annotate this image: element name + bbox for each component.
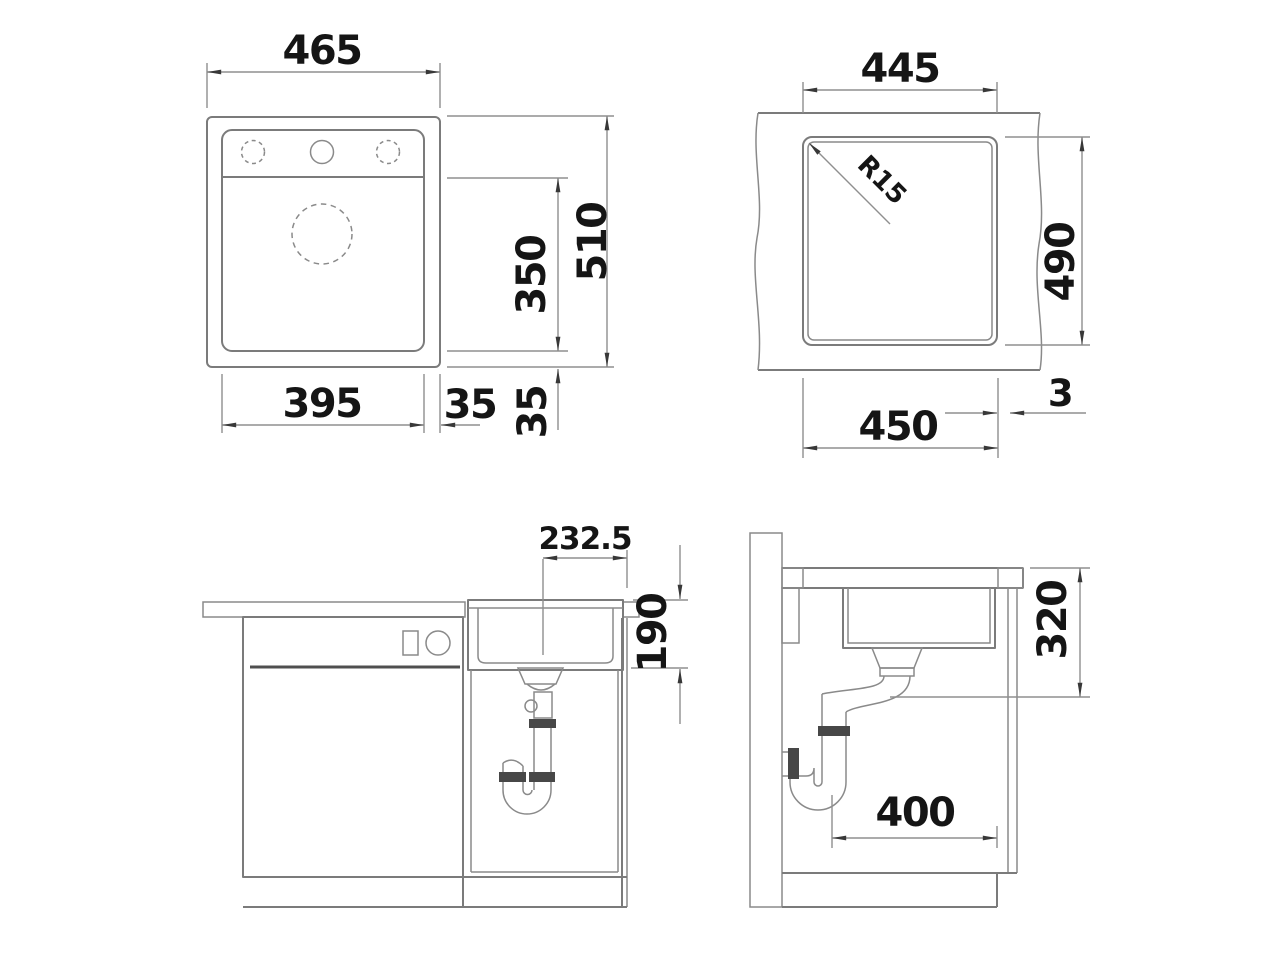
- dim-label-395: 395: [283, 381, 362, 427]
- dim-label-465: 465: [283, 28, 362, 74]
- basin-inner-wall: [848, 588, 990, 643]
- tap-hole-left-optional: [242, 141, 265, 164]
- worktop-hatch-left: [782, 568, 803, 588]
- cutout-outline: [803, 137, 997, 345]
- sink-cabinet-interior: [471, 670, 618, 872]
- dim-label-445: 445: [861, 46, 940, 92]
- worktop-break-line-left: [755, 113, 760, 370]
- pipe-collar: [529, 772, 555, 782]
- downpipe: [822, 694, 846, 782]
- drain-hole: [292, 204, 352, 264]
- dim-label-232-5: 232.5: [538, 521, 631, 557]
- dim-label-35-side: 35: [444, 382, 497, 428]
- page: 465 510 350 35 395 35: [0, 0, 1280, 960]
- dim-corner-radius: R15: [809, 143, 912, 224]
- dim-label-35-bottom: 35: [510, 386, 556, 439]
- control-knob: [426, 631, 450, 655]
- pipe-collar: [788, 748, 799, 779]
- tap-hole-right-optional: [377, 141, 400, 164]
- drain-sweep: [822, 676, 910, 712]
- sink-edge-in-cutout: [808, 142, 992, 340]
- dim-bowl-inner-depth: 190: [630, 545, 688, 724]
- basin-outer-wall: [843, 588, 995, 648]
- side-view: 320 400: [750, 533, 1090, 907]
- tap-hole-center: [311, 141, 334, 164]
- cutout-view: R15 445 490 450 3: [755, 46, 1090, 458]
- front-view: 232.5 190: [203, 521, 688, 907]
- pipe-collar: [499, 772, 526, 782]
- cabinet-front-panel: [1008, 588, 1017, 873]
- dim-label-320: 320: [1030, 581, 1076, 660]
- dim-cutout-width-bottom: 450: [803, 378, 998, 458]
- worktop-section: [782, 568, 1023, 588]
- dim-label-3: 3: [1048, 372, 1072, 415]
- dim-label-r15: R15: [851, 150, 912, 211]
- trap-bend: [790, 782, 846, 810]
- strainer-body: [880, 668, 914, 676]
- dim-cutout-depth: 490: [1005, 137, 1090, 345]
- plinth-recess: [782, 873, 997, 907]
- pipe-collar: [818, 726, 850, 736]
- sink-technical-drawing: 465 510 350 35 395 35: [0, 0, 1280, 960]
- strainer-dome: [527, 684, 555, 690]
- worktop-hatch-right: [998, 568, 1023, 588]
- dim-side-margin: 35: [441, 382, 496, 428]
- dim-drain-offset: 232.5: [538, 521, 631, 655]
- overflow-inlet: [525, 700, 537, 712]
- control-switch: [403, 631, 418, 655]
- top-view: 465 510 350 35 395 35: [207, 28, 616, 438]
- strainer-flange: [872, 648, 922, 668]
- basin-inner-wall: [478, 608, 613, 663]
- dim-label-350: 350: [509, 236, 555, 315]
- dim-rear-clearance: 400: [832, 790, 997, 848]
- dim-edge-gap: 3: [945, 372, 1086, 415]
- dim-label-190: 190: [630, 594, 676, 673]
- dim-label-510: 510: [570, 203, 616, 282]
- dim-overall-width: 465: [207, 28, 440, 108]
- dim-bottom-margin: 35: [510, 369, 558, 438]
- siphon-side: [782, 648, 922, 810]
- cabinet-front: [243, 617, 463, 877]
- dim-label-450: 450: [859, 404, 938, 450]
- dim-bowl-width: 395: [222, 374, 440, 433]
- dim-cutout-width-top: 445: [803, 46, 997, 113]
- trap-bend: [503, 790, 551, 814]
- pipe-collar: [529, 719, 556, 728]
- dim-label-490: 490: [1038, 223, 1084, 302]
- dim-label-400: 400: [876, 790, 955, 836]
- worktop-section-left: [203, 602, 465, 617]
- dim-bowl-depth: 350: [447, 178, 568, 351]
- wall-batten: [782, 588, 799, 643]
- siphon-front: [499, 668, 563, 814]
- wall-section: [750, 533, 782, 907]
- sink-basin-section: [468, 600, 623, 670]
